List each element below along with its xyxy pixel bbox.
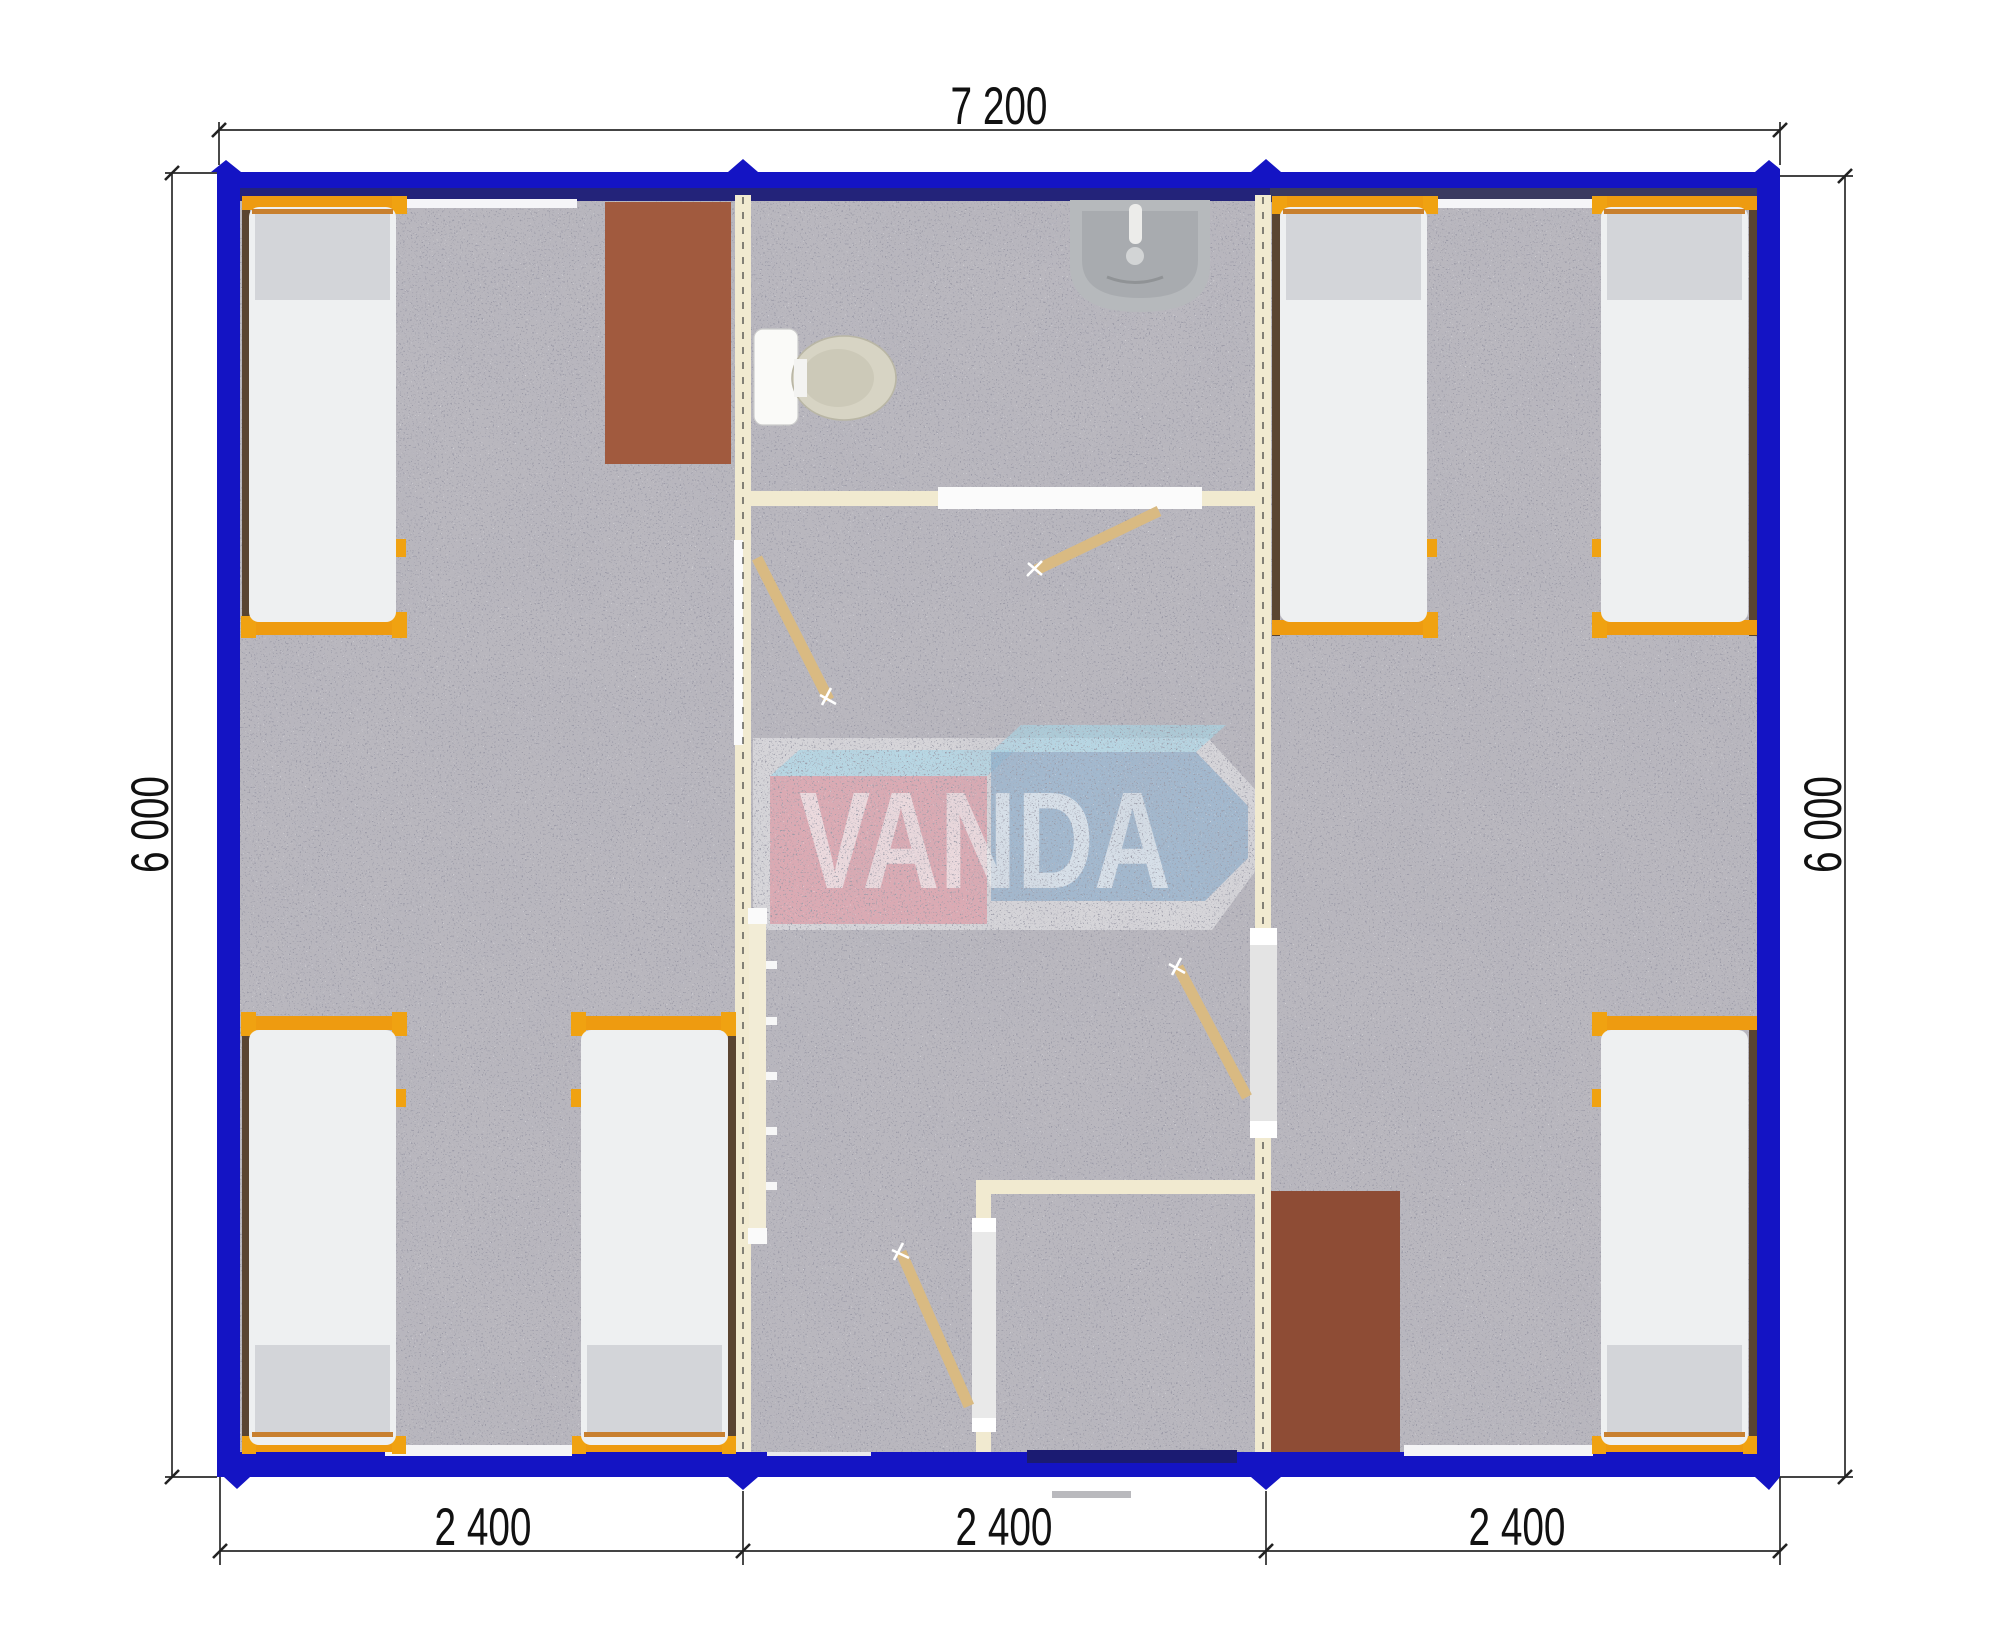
svg-text:2 400: 2 400 xyxy=(956,1498,1053,1557)
svg-text:6 000: 6 000 xyxy=(121,776,180,873)
svg-text:2 400: 2 400 xyxy=(1469,1498,1566,1557)
svg-text:6 000: 6 000 xyxy=(1794,776,1853,873)
svg-text:7 200: 7 200 xyxy=(951,77,1048,136)
svg-text:2 400: 2 400 xyxy=(435,1498,532,1557)
